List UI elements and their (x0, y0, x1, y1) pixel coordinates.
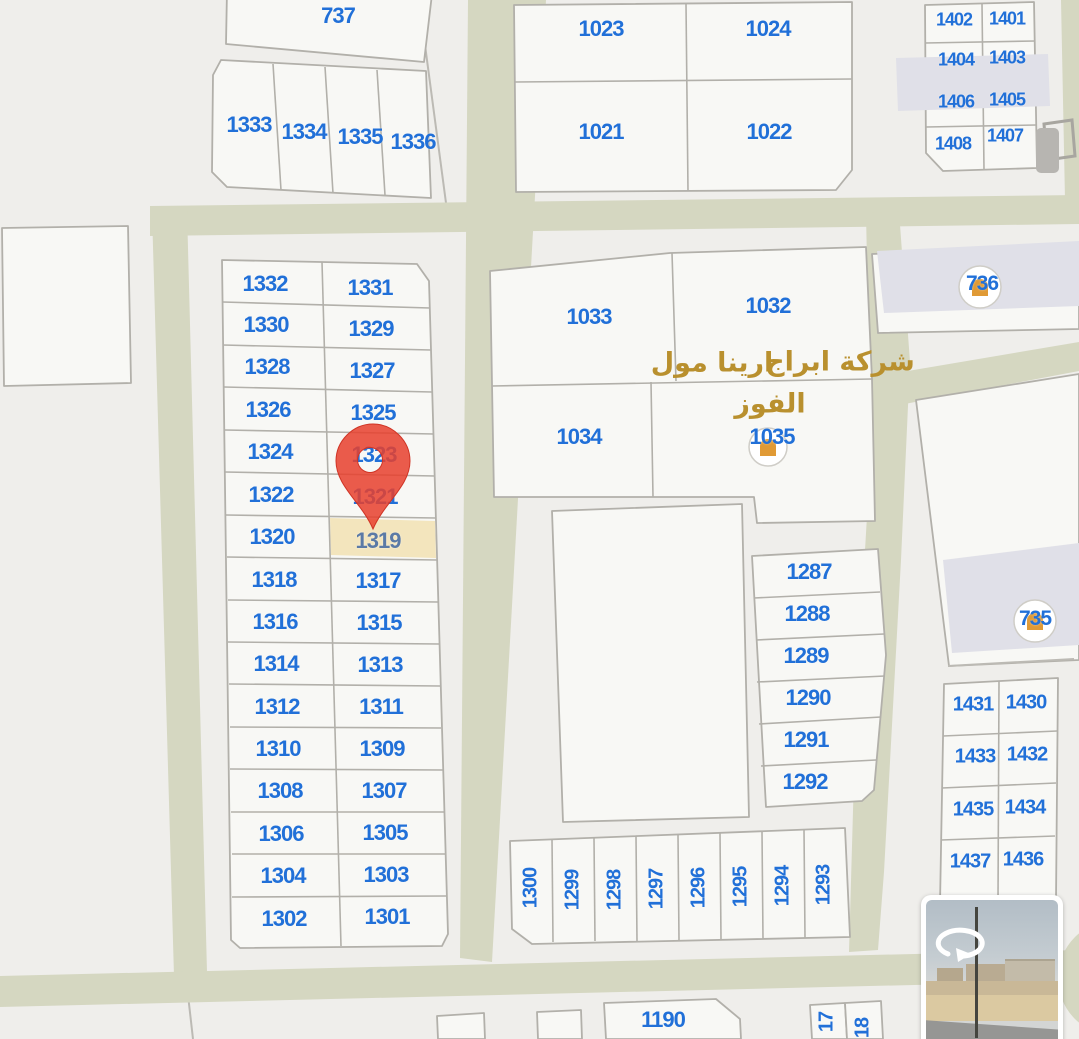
parcel-label-1291[interactable]: 1291 (784, 727, 829, 753)
building-footprint-735 (943, 543, 1079, 653)
parcel-label-1402[interactable]: 1402 (936, 10, 972, 31)
parcel-label-735[interactable]: 735 (1019, 607, 1051, 631)
road (150, 195, 1079, 236)
parcel-label-1299[interactable]: 1299 (562, 870, 585, 911)
area-label-alfawz: الفوز (734, 389, 805, 420)
parcel-label-1296[interactable]: 1296 (688, 868, 711, 909)
parcel-label-1318[interactable]: 1318 (252, 567, 297, 593)
parcel-label-1320[interactable]: 1320 (250, 524, 295, 550)
parcel-label-1319[interactable]: 1319 (356, 528, 401, 554)
parcel-label-1404[interactable]: 1404 (938, 50, 974, 71)
parcel-label-17[interactable]: 17 (816, 1012, 839, 1032)
street-view-photo[interactable] (926, 900, 1058, 1039)
parcel-label-1300[interactable]: 1300 (520, 868, 543, 909)
parcel-unlabeled[interactable] (537, 1010, 582, 1039)
parcel-label-1327[interactable]: 1327 (350, 358, 395, 384)
parcel-label-1408[interactable]: 1408 (935, 134, 971, 155)
parcel-label-1335[interactable]: 1335 (338, 124, 383, 150)
parcel-label-1294[interactable]: 1294 (772, 866, 795, 907)
road (0, 950, 1079, 1007)
parcel-label-1403[interactable]: 1403 (989, 48, 1025, 69)
parcel-label-1401[interactable]: 1401 (989, 9, 1025, 30)
parcel-label-1324[interactable]: 1324 (248, 439, 293, 465)
parcel-label-1310[interactable]: 1310 (256, 736, 301, 762)
parcel-label-1298[interactable]: 1298 (604, 870, 627, 911)
parcel-label-1311[interactable]: 1311 (359, 694, 403, 720)
parcel-label-1309[interactable]: 1309 (360, 736, 405, 762)
parcel-label-1330[interactable]: 1330 (244, 312, 289, 338)
parcel-label-1336[interactable]: 1336 (391, 129, 436, 155)
area-label-abraj-company: شركة ابراج (765, 347, 915, 378)
parcel-label-1022[interactable]: 1022 (747, 119, 792, 145)
photo-sand (926, 995, 1058, 1022)
parcel-label-1435[interactable]: 1435 (953, 799, 994, 822)
parcel-label-1293[interactable]: 1293 (813, 865, 836, 906)
parcel-label-1317[interactable]: 1317 (356, 568, 401, 594)
parcel-label-1289[interactable]: 1289 (784, 643, 829, 669)
parcel-label-1334[interactable]: 1334 (282, 119, 327, 145)
parcel-label-18[interactable]: 18 (852, 1018, 875, 1038)
building-icon (1036, 128, 1059, 173)
parcel-label-1328[interactable]: 1328 (245, 354, 290, 380)
parcel-label-1021[interactable]: 1021 (579, 119, 624, 145)
parcel-unlabeled[interactable] (552, 504, 749, 822)
parcel-label-1430[interactable]: 1430 (1006, 692, 1047, 715)
parcel-label-1325[interactable]: 1325 (351, 400, 396, 426)
parcel-label-1437[interactable]: 1437 (950, 851, 991, 874)
parcel-label-1407[interactable]: 1407 (987, 126, 1023, 147)
parcel-label-737[interactable]: 737 (321, 3, 355, 29)
parcel-label-1288[interactable]: 1288 (785, 601, 830, 627)
parcel-label-1326[interactable]: 1326 (246, 397, 291, 423)
parcel-label-1406[interactable]: 1406 (938, 92, 974, 113)
parcel-label-1295[interactable]: 1295 (730, 867, 753, 908)
parcel-label-1308[interactable]: 1308 (258, 778, 303, 804)
parcel-label-1322[interactable]: 1322 (249, 482, 294, 508)
parcel-label-1313[interactable]: 1313 (358, 652, 403, 678)
parcel-label-1405[interactable]: 1405 (989, 90, 1025, 111)
parcel-label-1023[interactable]: 1023 (579, 16, 624, 42)
map-viewport[interactable]: 7371333133413351336102310241021102214021… (0, 0, 1079, 1039)
parcel-unlabeled[interactable] (2, 226, 131, 386)
parcel-label-1304[interactable]: 1304 (261, 863, 306, 889)
parcel-label-1333[interactable]: 1333 (227, 112, 272, 138)
parcel-label-1305[interactable]: 1305 (363, 820, 408, 846)
parcel-label-1290[interactable]: 1290 (786, 685, 831, 711)
parcel-label-1306[interactable]: 1306 (259, 821, 304, 847)
parcel-label-1301[interactable]: 1301 (365, 904, 410, 930)
parcel-label-1331[interactable]: 1331 (348, 275, 393, 301)
parcel-label-1314[interactable]: 1314 (254, 651, 299, 677)
parcel-label-1433[interactable]: 1433 (955, 746, 996, 769)
parcel-label-1332[interactable]: 1332 (243, 271, 288, 297)
parcel-label-1436[interactable]: 1436 (1003, 849, 1044, 872)
parcel-label-1312[interactable]: 1312 (255, 694, 300, 720)
road (152, 210, 207, 976)
parcel-label-736[interactable]: 736 (966, 272, 998, 296)
parcel-label-1302[interactable]: 1302 (262, 906, 307, 932)
road (1061, 0, 1079, 200)
parcel-label-1315[interactable]: 1315 (357, 610, 402, 636)
parcel-label-1032[interactable]: 1032 (746, 293, 791, 319)
parcel-label-1287[interactable]: 1287 (787, 559, 832, 585)
parcel-label-1033[interactable]: 1033 (567, 304, 612, 330)
parcel-label-1431[interactable]: 1431 (953, 694, 994, 717)
street-view-thumbnail[interactable] (921, 895, 1063, 1039)
parcel-label-1434[interactable]: 1434 (1005, 797, 1046, 820)
area-label-arena-mall: ارينا مول (651, 348, 774, 379)
parcel-label-1297[interactable]: 1297 (646, 869, 669, 910)
parcel-label-1316[interactable]: 1316 (253, 609, 298, 635)
parcel-label-1329[interactable]: 1329 (349, 316, 394, 342)
parcel-unlabeled[interactable] (437, 1013, 485, 1039)
roundabout-road (1069, 931, 1079, 1025)
parcel-label-1432[interactable]: 1432 (1007, 744, 1048, 767)
block-1021-1024[interactable] (514, 2, 852, 192)
parcel-label-1034[interactable]: 1034 (557, 424, 602, 450)
parcel-label-1024[interactable]: 1024 (746, 16, 791, 42)
rotate-view-icon[interactable] (934, 921, 998, 967)
parcel-label-1307[interactable]: 1307 (362, 778, 407, 804)
parcel-label-1303[interactable]: 1303 (364, 862, 409, 888)
parcel-label-1292[interactable]: 1292 (783, 769, 828, 795)
parcel-label-1035[interactable]: 1035 (750, 424, 795, 450)
parcel-label-1190[interactable]: 1190 (641, 1007, 685, 1033)
